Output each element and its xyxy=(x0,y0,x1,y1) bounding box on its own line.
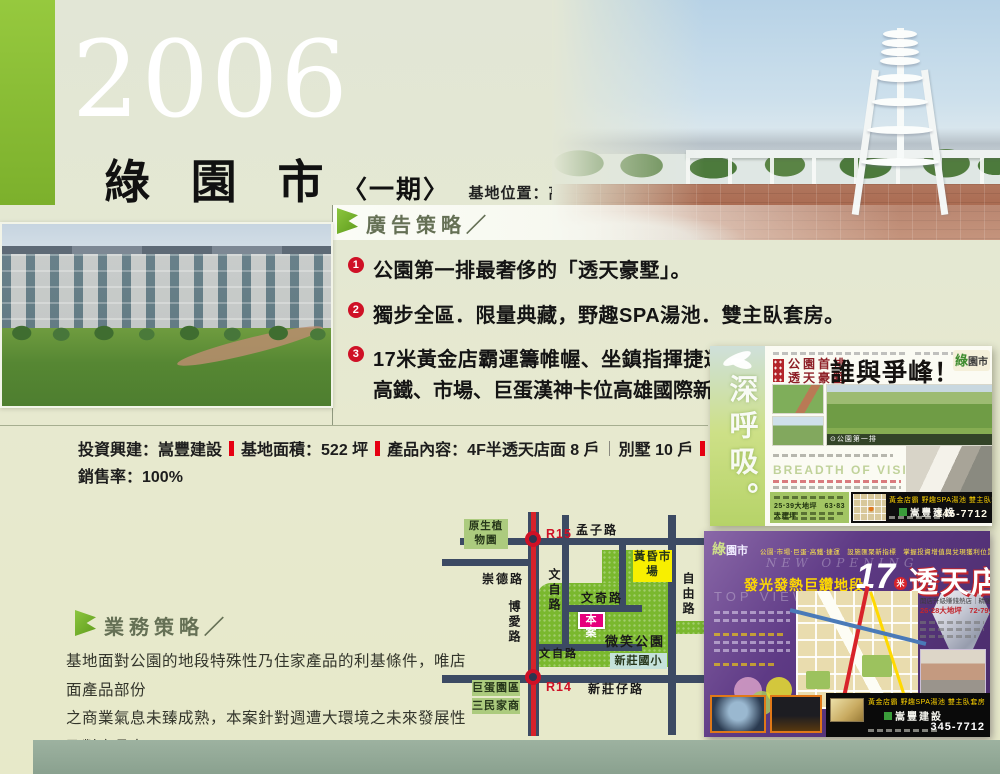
road-label-wenzi: 文自路 xyxy=(546,568,563,613)
flyer1-photo-aerial: ⊙公園第一排 xyxy=(826,384,992,446)
bullet-number-badge: 3 xyxy=(348,346,364,362)
flyer1-brand-logo: 綠園市 xyxy=(953,350,990,371)
flyer1-bottom-bar: 黃金店霸 野趣SPA湯池 雙主臥套房 嵩豐建設 345-7712 xyxy=(851,492,992,523)
station-r15-marker xyxy=(525,531,541,547)
map-green-patch xyxy=(806,671,830,689)
place-dome-district: 巨蛋園區 xyxy=(472,680,520,696)
info-product: 產品內容：4F半透天店面 8 戶 xyxy=(387,436,599,460)
flyer1-specs-box: 25‧39大地坪 63‧83大建坪 xyxy=(770,492,849,523)
map-yellow-road xyxy=(869,592,910,709)
building-photo xyxy=(0,222,333,408)
hero-park-photo xyxy=(552,0,1000,240)
flyer-17m-storefront: 綠園市 公園‧市場‧巨蛋‧高鐵‧捷運 設施匯聚新指標 掌握投資增值與兌現獲利位置… xyxy=(704,531,990,737)
accent-green-bar xyxy=(0,0,55,205)
ad-bullet-1: 1 公園第一排最奢侈的「透天豪墅」。 xyxy=(348,254,691,283)
bullet-number-badge: 2 xyxy=(348,302,364,318)
bullet-text: 獨步全區．限量典藏，野趣SPA湯池．雙主臥套房。 xyxy=(373,299,845,328)
micro-text-bar xyxy=(714,611,790,614)
sales-rate: 銷售率：100% xyxy=(78,463,183,487)
road-label-wenzi2: 文自路 xyxy=(539,645,578,661)
flyer1-phone: 345-7712 xyxy=(936,508,988,520)
logo-green-char: 綠 xyxy=(955,353,968,368)
bullet-number-badge: 1 xyxy=(348,257,364,273)
flyer2-bar-slogan: 黃金店霸 野趣SPA湯池 雙主臥套房 xyxy=(868,697,985,707)
flyer2-city-map xyxy=(796,591,918,709)
year-heading: 2006 xyxy=(72,22,350,139)
bottom-sage-bar xyxy=(33,740,1000,774)
flyer2-brand-logo: 綠園市 xyxy=(712,539,748,559)
micro-text-bar xyxy=(774,496,844,499)
road-label-ziyou: 自由路 xyxy=(680,572,697,617)
flyer2-street-photo xyxy=(920,649,986,699)
micro-text-bar xyxy=(714,641,790,644)
red-seal-stamp xyxy=(773,359,784,382)
road-label-wenqi: 文奇路 xyxy=(581,589,623,606)
ad-bullet-3: 3 17米黃金店霸運籌帷幄、坐鎮指揮捷運、 xyxy=(348,343,745,372)
thin-separator xyxy=(609,441,610,456)
flyer2-phone: 345-7712 xyxy=(931,721,986,733)
station-r14-label: R14 xyxy=(546,680,572,694)
micro-text-bar xyxy=(773,454,893,457)
flyer2-dome-night-photo xyxy=(710,695,766,733)
dove-icon xyxy=(729,356,753,371)
micro-text-bar xyxy=(714,619,790,622)
red-separator xyxy=(375,441,380,456)
station-r15-label: R15 xyxy=(546,527,572,541)
flyer2-right-title: 開店升級賺錢熱店｜精雕完工 xyxy=(920,595,988,605)
map-green-patch xyxy=(862,655,892,677)
project-phase: 〈一期〉 xyxy=(342,176,450,204)
flyer1-mini-map xyxy=(853,494,886,521)
road-chongde xyxy=(442,559,534,566)
flyer1-green-strip: 深呼吸。 xyxy=(710,346,765,526)
place-botanic-garden: 原生植物園 xyxy=(464,519,508,549)
micro-text-bar xyxy=(773,480,901,483)
bullet-text: 17米黃金店霸運籌帷幄、坐鎮指揮捷運、 xyxy=(373,343,745,372)
builder-logo-icon xyxy=(899,508,907,516)
micro-text-bar xyxy=(920,628,984,631)
section-flag-icon xyxy=(75,610,96,636)
builder-logo-icon xyxy=(884,712,892,720)
flyer2-bottom-bar: 黃金店霸 野趣SPA湯池 雙主臥套房 嵩豐建設 345-7712 xyxy=(826,693,990,737)
hero-left-fade xyxy=(552,0,1000,240)
site-marker: 本案 xyxy=(578,612,605,629)
info-developer: 投資興建：嵩豐建設 xyxy=(78,436,222,460)
flyer1-photo-small-2 xyxy=(772,416,824,446)
micro-text-bar xyxy=(714,633,784,636)
micro-text-bar xyxy=(920,621,984,624)
place-evening-market: 黃昏市場 xyxy=(633,550,672,582)
road-ziyou xyxy=(668,515,676,735)
info-product2: 別墅 10 戶 xyxy=(619,436,694,460)
place-smile-park-label: 微笑公園 xyxy=(605,631,665,650)
flyer2-new-opening: NEW OPENING xyxy=(766,556,918,570)
brochure-page: 2006 綠 園 市 〈一期〉 基地位置：高雄市文奇路．文自路 廣告策略／ xyxy=(0,0,1000,774)
flyer2-right-specs: 26‧28大地坪 72‧79大建坪 xyxy=(920,605,988,616)
info-site-area: 基地面積：522 坪 xyxy=(241,436,368,460)
flyer-park-first-row: 深呼吸。 公園首排 透天豪墅 誰與爭峰！ 綠園市 ⊙公園第一排 BREADTH … xyxy=(710,346,992,526)
logo-rest: 園市 xyxy=(726,545,748,557)
flyer1-photo-small-1 xyxy=(772,384,824,414)
business-strategy-title: 業務策略／ xyxy=(104,611,229,640)
young-trees-row xyxy=(2,320,331,346)
flyer2-street-night-photo xyxy=(770,695,822,733)
ad-bullet-2: 2 獨步全區．限量典藏，野趣SPA湯池．雙主臥套房。 xyxy=(348,299,845,328)
bullet-text: 公園第一排最奢侈的「透天豪墅」。 xyxy=(373,254,691,283)
micro-text-bar xyxy=(714,649,790,652)
gold-plaque xyxy=(830,698,864,722)
logo-green-char: 綠 xyxy=(712,541,726,557)
micro-text-bar xyxy=(774,512,844,515)
flyer1-bar-slogan: 黃金店霸 野趣SPA湯池 雙主臥套房 xyxy=(889,495,992,505)
red-separator xyxy=(700,441,705,456)
flyer1-vertical-slogan: 深呼吸。 xyxy=(720,374,762,518)
flyer1-house-photo xyxy=(906,446,992,492)
logo-rest: 園市 xyxy=(968,357,988,368)
road-label-boai: 博愛路 xyxy=(506,600,523,645)
road-wenqi xyxy=(562,605,642,612)
micro-text-bar xyxy=(714,663,776,666)
red-separator xyxy=(229,441,234,456)
micro-text-bar xyxy=(773,486,901,489)
project-name: 綠 園 市 xyxy=(104,156,338,208)
road-label-mengzi: 孟子路 xyxy=(576,521,618,538)
micro-text-bar xyxy=(920,635,976,638)
micro-text-bar xyxy=(868,729,938,732)
ad-strategy-title: 廣告策略／ xyxy=(366,209,491,238)
flyer2-top-line: 公園‧市場‧巨蛋‧高鐵‧捷運 設施匯聚新指標 掌握投資增值與兌現獲利位置！ xyxy=(760,546,990,556)
place-school: 新莊國小 xyxy=(610,653,667,669)
flyer2-mi-badge: 米 xyxy=(894,577,907,590)
micro-text-bar xyxy=(774,517,834,520)
road-label-xinzhuangzai: 新莊仔路 xyxy=(588,680,644,697)
flyer1-photo-caption: ⊙公園第一排 xyxy=(827,434,992,445)
station-r14-marker xyxy=(525,669,541,685)
biz-line: 基地面對公園的地段特殊性乃住家產品的利基條件，唯店面產品部份 xyxy=(66,648,466,705)
flyer2-top-view-text: TOP VIEW xyxy=(714,589,809,604)
road-label-chongde: 崇德路 xyxy=(482,570,524,587)
location-map: R15 R14 原生植物園 黃昏市場 本案 微笑公園 新莊國小 巨蛋園區 三民家… xyxy=(442,512,704,738)
place-sanmin-school: 三民家商 xyxy=(472,698,520,714)
horizontal-divider xyxy=(0,425,708,426)
